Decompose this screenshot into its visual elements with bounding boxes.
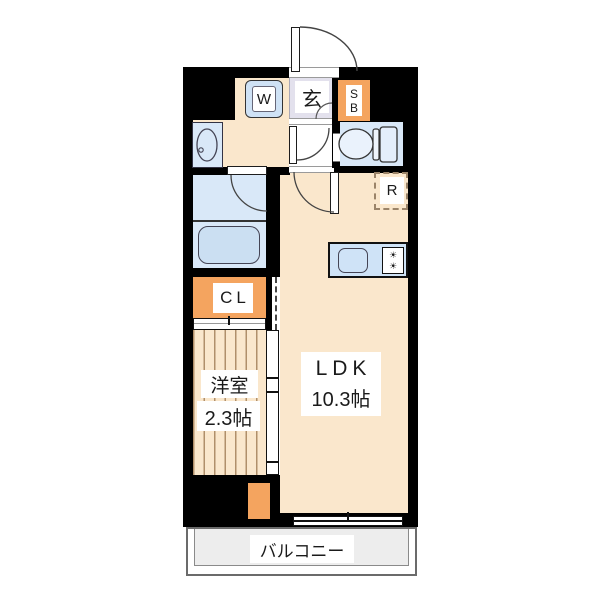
shoe-box-label: S B — [346, 85, 362, 116]
room-toilet — [340, 122, 403, 166]
window-handle — [347, 512, 349, 520]
western-room-name: 洋室 — [201, 370, 258, 398]
shoe-box: S B — [338, 80, 370, 121]
refrigerator-label: R — [380, 177, 404, 204]
closet-door-handle — [228, 316, 230, 325]
shoe-box-line1: S — [350, 87, 358, 101]
balcony-label-text: バルコニー — [260, 537, 345, 562]
ldk-size-text: 10.3帖 — [312, 383, 371, 412]
hall-door-leaf — [289, 126, 297, 164]
wall-bottom-right — [403, 513, 418, 527]
sliding-door — [266, 330, 279, 475]
kitchen-sink-icon — [338, 248, 368, 273]
entrance-door-arc — [300, 27, 357, 71]
hall-ldk-threshold — [289, 166, 332, 173]
wall-right — [408, 67, 418, 525]
sliding-door-tick — [267, 461, 278, 463]
sliding-door-tick — [267, 377, 278, 379]
closet-label: CL — [213, 283, 253, 313]
bathtub-icon — [198, 226, 260, 264]
shoe-box-line2: B — [350, 101, 358, 115]
ldk-label: LDK 10.3帖 — [301, 352, 381, 416]
western-room-name-text: 洋室 — [210, 371, 248, 398]
pillar — [248, 483, 270, 519]
toilet-door — [333, 133, 340, 162]
room-ldk — [280, 172, 408, 517]
ldk-door-leaf — [330, 172, 339, 214]
refrigerator-label-text: R — [387, 182, 398, 199]
washing-machine-label: W — [252, 86, 276, 112]
wall-segment — [183, 167, 228, 175]
entrance-label: 玄 — [295, 81, 329, 113]
kitchen-counter: ☀ ☀ — [328, 242, 408, 278]
sink-unit — [192, 122, 223, 168]
bathroom-door-leaf — [227, 166, 267, 175]
washer-label-text: W — [257, 91, 271, 108]
ldk-name-text: LDK — [311, 357, 372, 381]
closet-door — [193, 318, 266, 330]
western-room-size-text: 2.3帖 — [205, 402, 253, 431]
wall-top-left-block — [183, 67, 235, 120]
sliding-door-tick — [267, 391, 278, 393]
wall-bath-closet — [183, 268, 268, 277]
wall-segment — [403, 122, 408, 166]
washing-machine-space: W — [245, 80, 283, 118]
balcony: バルコニー — [186, 527, 417, 576]
entrance-door-leaf — [291, 27, 300, 72]
entrance-label-text: 玄 — [302, 83, 322, 112]
wall-divider-upper — [266, 170, 280, 277]
window-mid-line — [294, 520, 402, 522]
balcony-label: バルコニー — [250, 535, 354, 563]
entrance-hall-threshold — [289, 118, 332, 125]
floor-plan: W S B ☀ ☀ R CL — [0, 0, 600, 600]
stove-burner-icon: ☀ — [389, 250, 397, 261]
balcony-window — [293, 516, 403, 526]
dashed-line — [275, 277, 277, 330]
bathroom-divider — [193, 220, 266, 222]
closet-dashed-opening — [272, 277, 280, 330]
refrigerator-space: R — [374, 172, 408, 210]
closet-label-text: CL — [220, 288, 250, 308]
wall-top — [235, 67, 291, 78]
stove-burner-icon: ☀ — [389, 261, 397, 272]
western-room-size: 2.3帖 — [197, 401, 260, 431]
stove-icon: ☀ ☀ — [382, 247, 404, 274]
